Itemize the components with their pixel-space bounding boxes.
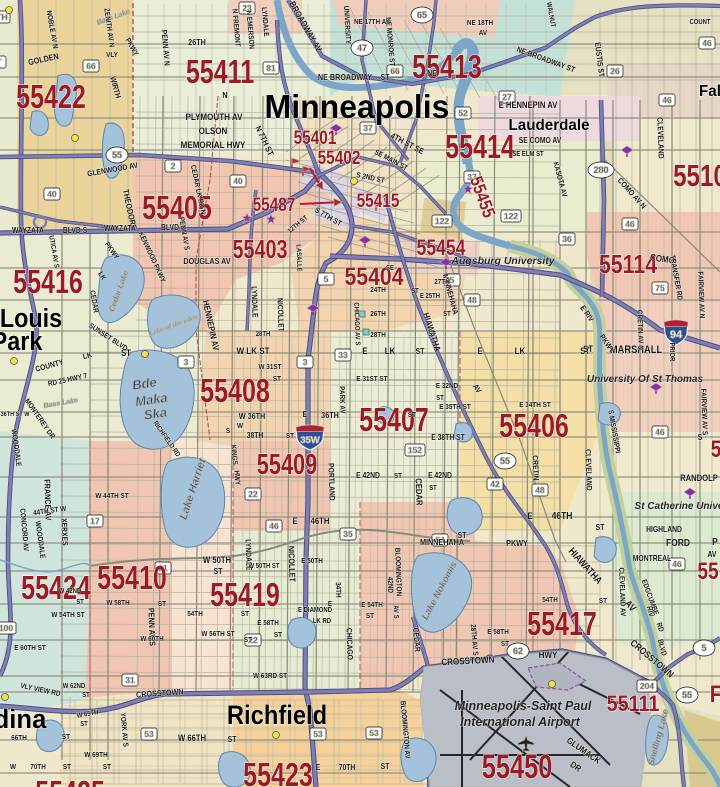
svg-text:E 25TH: E 25TH [420,293,440,301]
svg-text:ST: ST [596,522,605,532]
svg-text:CRETIN AV N: CRETIN AV N [635,310,644,350]
svg-text:40: 40 [47,189,57,199]
svg-text:XERXES: XERXES [59,518,70,546]
svg-text:E 42ND: E 42ND [356,470,380,480]
svg-text:W 69TH: W 69TH [84,752,107,760]
svg-text:ST: ST [273,376,282,384]
svg-text:NE: NE [427,68,436,78]
svg-text:E: E [292,515,297,526]
svg-text:81: 81 [266,63,276,73]
svg-text:N: N [222,90,227,100]
svg-text:65: 65 [417,10,427,20]
svg-text:ST: ST [458,530,467,540]
svg-text:TH: TH [0,12,8,22]
svg-text:46TH: 46TH [552,510,573,521]
svg-text:55413: 55413 [412,49,482,86]
svg-text:75: 75 [655,283,665,293]
svg-text:CLEVELAND: CLEVELAND [583,449,594,491]
svg-text:5: 5 [701,643,706,653]
svg-text:ST: ST [286,433,295,441]
svg-text:28TH: 28TH [370,332,386,340]
svg-text:E 42ND: E 42ND [428,470,452,480]
svg-text:36: 36 [562,234,572,244]
svg-text:HWY: HWY [232,470,241,486]
svg-text:46: 46 [625,219,635,229]
svg-text:46: 46 [662,95,672,105]
svg-text:PARK AV: PARK AV [337,386,346,414]
svg-text:55423: 55423 [243,757,313,787]
svg-text:FORD: FORD [666,537,690,548]
svg-text:ST: ST [443,311,451,319]
svg-text:27TH: 27TH [434,279,450,287]
svg-text:E 50TH: E 50TH [301,558,323,566]
svg-text:SE: SE [386,265,395,273]
svg-text:ST: ST [80,721,88,729]
svg-text:66TH: 66TH [11,735,27,743]
svg-text:MARSHALL: MARSHALL [610,344,662,356]
svg-text:E 35TH ST: E 35TH ST [439,404,471,412]
svg-text:WAYZATA: WAYZATA [12,225,44,235]
svg-text:ST: ST [274,632,283,640]
svg-text:NICOLLET: NICOLLET [286,546,297,583]
svg-text:E HENNEPIN AV: E HENNEPIN AV [499,99,558,110]
svg-text:52: 52 [458,108,468,118]
svg-text:ST: ST [411,288,419,296]
svg-text:46: 46 [269,521,279,531]
svg-text:ST: ST [214,566,223,576]
svg-text:66: 66 [390,66,400,76]
svg-text:46: 46 [702,38,712,48]
svg-text:55: 55 [697,557,718,585]
svg-text:NE BROADWAY: NE BROADWAY [318,72,373,82]
svg-text:26: 26 [610,66,620,76]
svg-text:36TH: 36TH [321,410,339,420]
svg-text:W 56TH ST: W 56TH ST [201,631,235,639]
svg-text:Fal: Fal [699,83,720,100]
svg-text:E 31ST ST: E 31ST ST [356,376,388,384]
svg-text:55401: 55401 [294,126,337,148]
svg-text:55414: 55414 [445,129,515,166]
svg-text:ST: ST [63,764,72,772]
svg-text:35W: 35W [300,435,320,446]
svg-text:55402: 55402 [318,146,361,168]
svg-text:WAYZATA: WAYZATA [104,223,136,233]
svg-text:55415: 55415 [357,189,400,211]
svg-text:St Catherine Unive: St Catherine Unive [635,501,720,512]
svg-text:55487: 55487 [253,193,296,215]
svg-text:55406: 55406 [499,408,569,445]
svg-text:54TH: 54TH [542,597,558,605]
svg-text:ST: ST [501,641,510,649]
svg-text:Augsburg University: Augsburg University [450,255,555,267]
svg-text:5: 5 [324,274,329,284]
svg-text:ST: ST [228,734,237,744]
svg-text:42: 42 [490,479,500,489]
svg-text:204: 204 [640,681,654,691]
svg-text:ST: ST [408,412,417,420]
svg-text:E 32ND: E 32ND [436,383,458,391]
svg-text:53: 53 [144,729,154,739]
svg-text:ST: ST [62,734,71,742]
svg-text:55410: 55410 [97,560,167,597]
svg-text:E 58TH: E 58TH [257,620,279,628]
svg-text:PORTLAND: PORTLAND [326,463,337,502]
svg-text:ST: ST [241,611,250,619]
svg-text:VLY: VLY [106,52,118,60]
svg-text:W 63RD ST: W 63RD ST [253,673,288,681]
svg-text:Richfield: Richfield [227,701,327,731]
svg-text:ST: ST [381,761,390,771]
svg-text:ST: ST [436,395,444,403]
svg-text:BLVD: BLVD [161,222,180,232]
svg-text:36TH ST W: 36TH ST W [1,412,30,418]
svg-text:46: 46 [672,559,682,569]
svg-text:W LK ST: W LK ST [236,345,270,356]
svg-text:CRETIN: CRETIN [530,455,541,481]
svg-text:E: E [477,345,482,356]
svg-text:W 31ST: W 31ST [258,364,282,372]
svg-text:CLEVELAND: CLEVELAND [655,117,666,159]
svg-text:55: 55 [500,456,510,466]
svg-text:ST: ST [381,72,390,82]
svg-text:33: 33 [338,350,348,360]
svg-text:46: 46 [655,427,665,437]
svg-text:54TH: 54TH [187,611,203,619]
svg-text:70TH: 70TH [30,764,46,772]
svg-text:46TH: 46TH [311,515,330,526]
svg-text:31: 31 [125,675,135,685]
svg-text:CHICAGO AV S: CHICAGO AV S [352,302,361,346]
svg-text:55: 55 [682,690,692,700]
svg-text:P: P [712,536,718,547]
svg-text:LK: LK [385,345,396,356]
svg-text:55411: 55411 [186,54,254,91]
svg-text:5510: 5510 [673,158,720,193]
svg-text:E 38TH ST: E 38TH ST [431,432,465,442]
svg-text:55403: 55403 [233,234,288,263]
svg-text:Minneapolis-Saint Paul: Minneapolis-Saint Paul [455,699,592,713]
svg-text:55450: 55450 [482,749,553,786]
svg-text:ST: ST [76,599,84,607]
svg-text:ST: ST [599,598,608,606]
svg-text:RANDOLP: RANDOLP [680,472,718,483]
svg-text:53: 53 [313,729,323,739]
svg-text:AV: AV [708,549,717,559]
svg-text:LK RD: LK RD [313,618,331,626]
svg-text:E 54TH: E 54TH [361,602,383,610]
svg-text:CEDAR: CEDAR [413,478,425,506]
svg-text:F: F [710,680,720,707]
svg-text:55417: 55417 [527,606,597,643]
svg-text:PKWY: PKWY [506,538,528,548]
svg-text:E 58TH: E 58TH [487,629,509,637]
svg-text:ST: ST [394,473,403,481]
svg-text:70TH: 70TH [339,762,356,772]
svg-text:55422: 55422 [16,79,86,116]
svg-text:55425: 55425 [35,775,105,787]
svg-text:22: 22 [248,489,258,499]
svg-text:E: E [527,510,532,521]
svg-text:LYNDALE: LYNDALE [249,286,260,318]
svg-text:W 54TH ST: W 54TH ST [51,612,85,620]
svg-text:DOUGLAS AV: DOUGLAS AV [183,256,231,266]
svg-text:5: 5 [711,435,720,463]
svg-text:40: 40 [233,176,243,186]
svg-text:S: S [226,428,231,436]
svg-text:38TH: 38TH [247,430,264,440]
svg-text:ST: ST [583,343,593,354]
svg-text:Ska: Ska [143,405,168,423]
svg-text:ST: ST [366,613,375,621]
svg-text:280: 280 [593,165,608,175]
svg-text:55408: 55408 [200,373,270,410]
svg-text:122: 122 [435,216,449,226]
svg-text:26TH: 26TH [188,37,206,47]
svg-text:24TH: 24TH [370,287,386,295]
svg-text:SE COMO AV: SE COMO AV [519,135,562,145]
svg-text:100: 100 [0,623,13,633]
svg-text:55419: 55419 [210,577,280,614]
svg-text:Park: Park [0,328,43,356]
svg-text:E: E [303,409,308,419]
svg-text:26TH: 26TH [370,311,386,319]
svg-text:PRIOR: PRIOR [668,343,676,362]
svg-text:W 50TH: W 50TH [203,554,231,565]
svg-text:55409: 55409 [257,449,317,481]
svg-text:W 50TH ST: W 50TH ST [248,563,279,571]
svg-text:66: 66 [86,61,96,71]
svg-text:PLYMOUTH AV: PLYMOUTH AV [185,111,242,122]
svg-text:MEMORIAL HWY: MEMORIAL HWY [181,139,246,150]
svg-text:W 60TH: W 60TH [140,636,163,644]
svg-text:Minneapolis: Minneapolis [265,89,450,126]
svg-text:55407: 55407 [359,402,429,439]
svg-text:W: W [237,423,243,431]
svg-text:55114: 55114 [599,250,658,280]
svg-text:E: E [362,345,367,356]
svg-text:Lauderdale: Lauderdale [508,117,589,134]
svg-text:S: S [698,432,703,442]
svg-text:28TH: 28TH [256,331,271,339]
svg-text:3: 3 [303,357,308,367]
svg-text:ST: ST [428,331,436,339]
svg-text:48: 48 [467,295,477,305]
svg-text:ST: ST [82,692,90,700]
svg-text:W 66TH: W 66TH [178,732,206,743]
svg-text:BLVD S: BLVD S [63,225,87,235]
svg-text:NICOLLET: NICOLLET [275,298,286,333]
svg-text:152: 152 [408,445,422,455]
svg-text:E: E [316,762,321,772]
svg-text:ST: ST [103,764,112,772]
svg-text:ST: ST [244,637,253,645]
svg-text:W 62ND: W 62ND [63,683,86,691]
svg-text:94: 94 [670,329,683,341]
svg-text:ST: ST [416,346,425,356]
svg-text:48: 48 [535,485,545,495]
svg-text:ST: ST [429,485,437,493]
svg-text:SE ELM ST: SE ELM ST [512,151,543,159]
svg-text:LASALLE: LASALLE [294,244,303,272]
svg-text:35: 35 [343,529,353,539]
svg-text:53: 53 [369,728,379,738]
svg-text:42ND: 42ND [386,577,394,594]
svg-text:HWY: HWY [539,649,558,660]
svg-text:55: 55 [112,150,122,160]
svg-text:W: W [10,764,16,772]
svg-text:17: 17 [90,516,100,526]
svg-text:ST: ST [158,601,167,609]
svg-text:dina: dina [0,703,47,734]
svg-text:International Airport: International Airport [460,715,581,729]
svg-text:W 42ND: W 42ND [59,588,82,596]
svg-text:W 36TH: W 36TH [239,411,266,421]
svg-text:AV: AV [479,30,488,38]
svg-text:2: 2 [171,161,176,171]
svg-text:E 60TH ST: E 60TH ST [14,645,46,653]
svg-text:55416: 55416 [13,264,83,301]
svg-text:OLSON: OLSON [199,125,228,136]
svg-text:LK: LK [515,345,526,356]
svg-text:CHICAGO: CHICAGO [344,628,355,661]
svg-text:NE 18TH: NE 18TH [467,20,493,28]
svg-text:HIGHLAND: HIGHLAND [646,524,682,534]
svg-text:AV S: AV S [392,605,400,619]
svg-text:E: E [328,601,333,609]
svg-text:W 44TH ST: W 44TH ST [95,493,129,501]
svg-text:E 34TH ST: E 34TH ST [519,402,551,410]
svg-text:47: 47 [357,43,367,53]
svg-text:122: 122 [504,211,518,221]
svg-text:W 58TH: W 58TH [106,600,129,608]
svg-text:34TH: 34TH [334,582,342,598]
svg-text:University Of St Thomas: University Of St Thomas [587,374,704,385]
svg-text:3: 3 [184,357,189,367]
svg-text:55111: 55111 [607,692,660,716]
svg-text:62: 62 [513,646,523,656]
svg-text:COUNT: COUNT [689,19,710,27]
svg-text:MONTREAL: MONTREAL [633,553,672,563]
